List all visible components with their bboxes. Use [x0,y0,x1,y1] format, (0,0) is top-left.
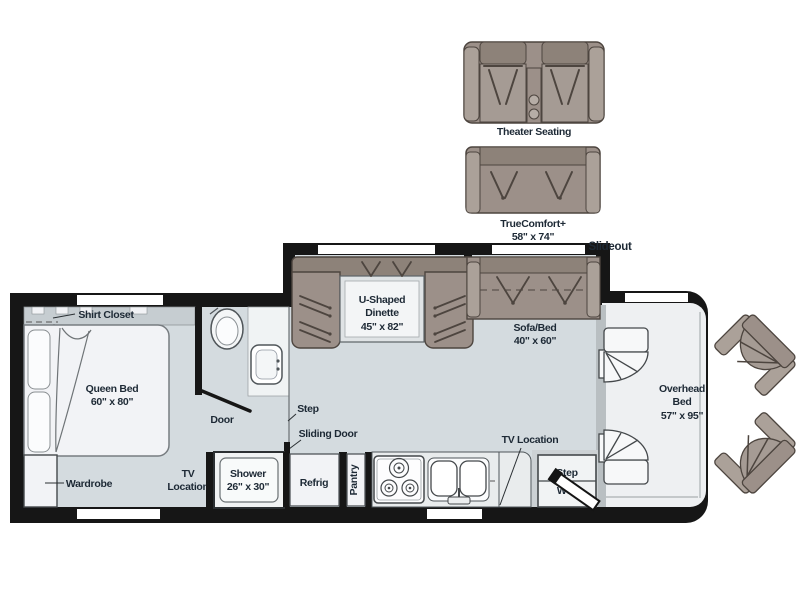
galley-tv-label: TV Location [502,434,559,446]
truecomfort-size: 58" x 74" [512,231,555,243]
u-shaped-dinette: U-Shaped Dinette 45" x 82" [292,257,473,348]
sofa-bed-size: 40" x 60" [514,335,557,347]
rv-floorplan: Theater Seating TrueComfort+ 58" x 74" [0,0,800,600]
queen-bed-size: 60" x 80" [91,396,134,408]
entry: Step Well [532,450,601,511]
shirt-closet-label: Shirt Closet [78,309,134,321]
shower: Shower 26" x 30" [206,452,284,508]
bath-door-label: Door [210,414,234,426]
truecomfort-sofa-option: TrueComfort+ 58" x 74" [466,147,600,243]
pantry-label: Pantry [348,464,360,495]
slideout-label: Slideout [589,241,632,253]
cupholder-icon [529,109,539,119]
dinette-label1: U-Shaped [359,294,406,306]
pillow-icon [28,330,50,389]
overhead-bed-label2: Bed [673,396,692,408]
kitchen-sink-icon [428,458,489,504]
stove-icon [374,456,424,503]
pillow-icon [28,392,50,452]
refrig-label: Refrig [300,477,329,489]
exterior-chair-icon [713,310,800,397]
truecomfort-label: TrueComfort+ [500,218,566,230]
shower-size: 26" x 30" [227,481,270,493]
bedroom-tv-label: TV [182,468,195,480]
step-label: Step [297,403,319,415]
sliding-door-label: Sliding Door [299,428,358,440]
overhead-bed-label1: Overhead [659,383,705,395]
dinette-size: 45" x 82" [361,321,404,333]
overhead-bed-size: 57" x 95" [661,410,704,422]
queen-bed-label: Queen Bed [86,383,139,395]
cupholder-icon [529,95,539,105]
wardrobe-label: Wardrobe [66,478,113,490]
exterior-chair-icon [713,411,800,498]
floorplan-canvas: Theater Seating TrueComfort+ 58" x 74" [0,0,800,600]
dinette-label2: Dinette [365,307,399,319]
theater-seating-label: Theater Seating [497,126,571,138]
wardrobe [24,455,57,507]
bedroom-tv-label2: Location [167,481,208,493]
theater-seating-option: Theater Seating [464,42,604,138]
sofa-bed-label: Sofa/Bed [513,322,556,334]
shower-label: Shower [230,468,266,480]
